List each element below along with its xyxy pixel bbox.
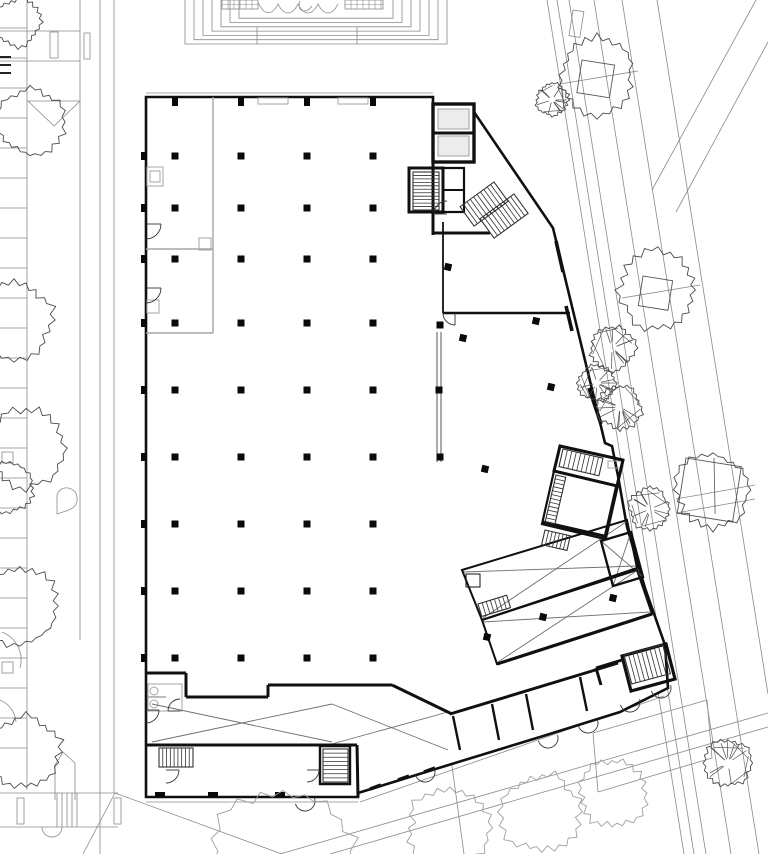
- edge-label-ticks: [0, 57, 11, 73]
- plaza-steps: [185, 0, 447, 44]
- floor-plan-canvas: [0, 0, 768, 854]
- parking-stalls: [0, 28, 77, 827]
- floor-plan: [0, 0, 768, 854]
